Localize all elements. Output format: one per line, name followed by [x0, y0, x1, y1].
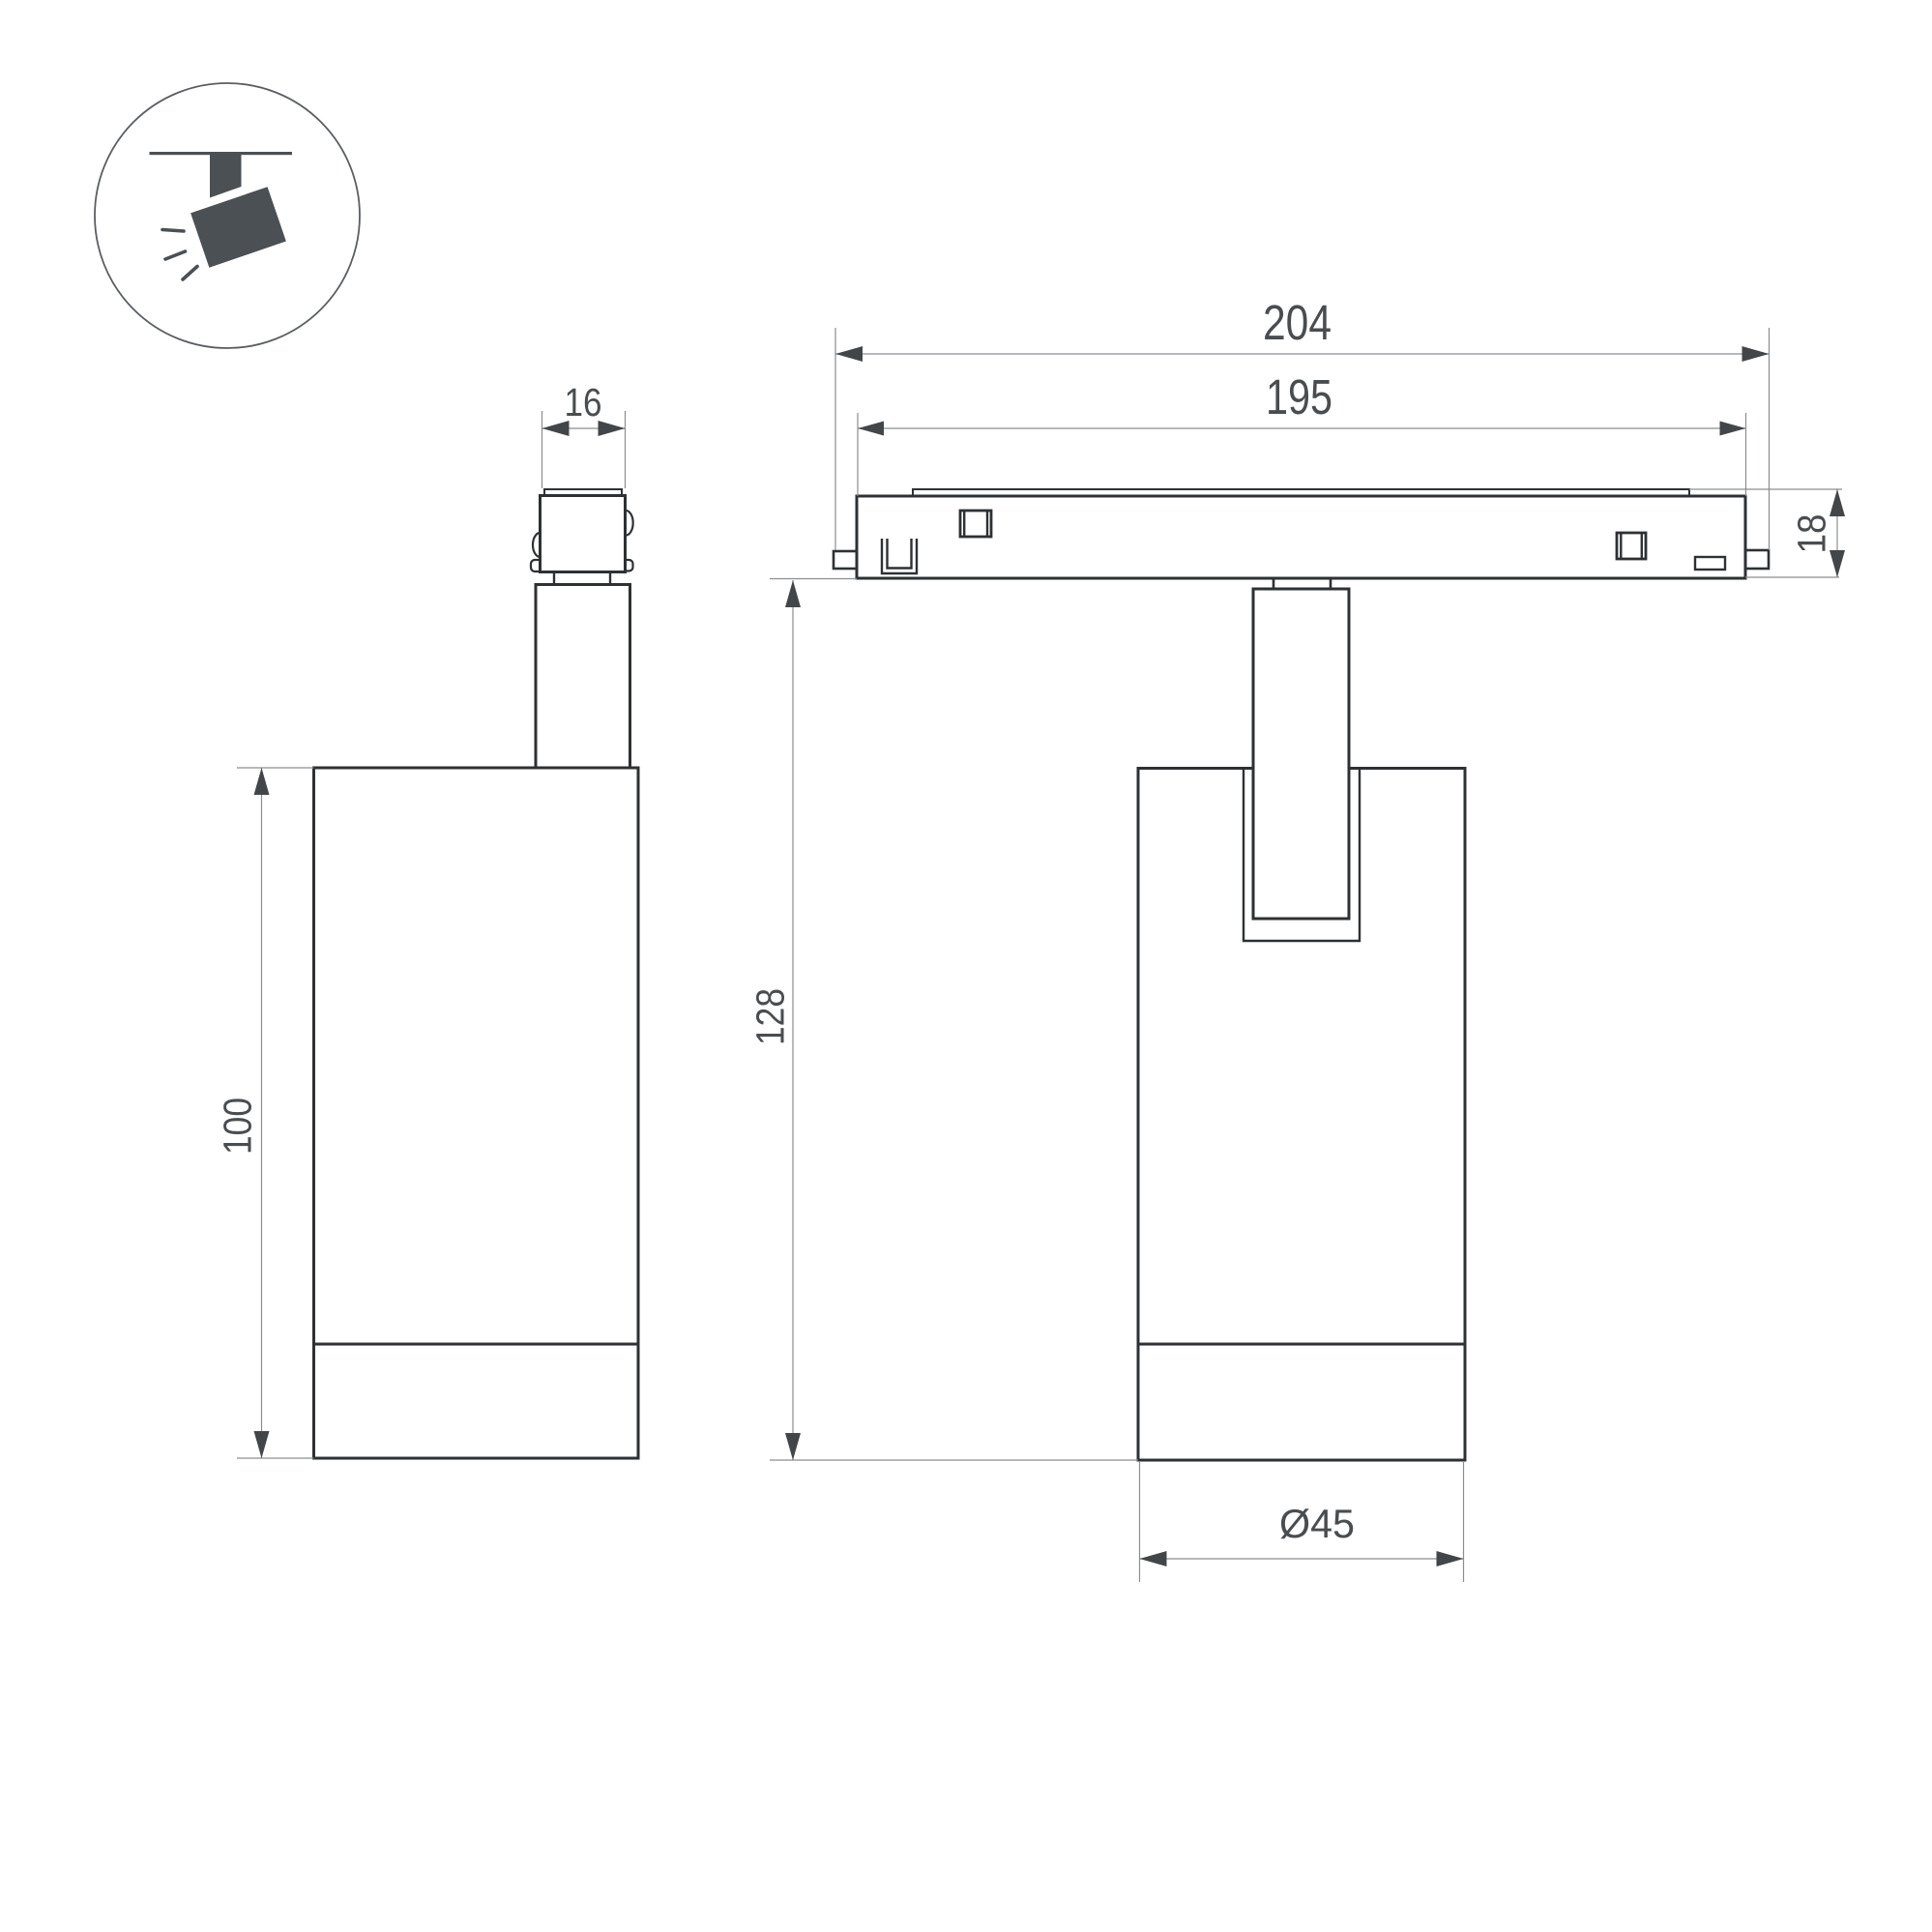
svg-text:128: 128 [748, 988, 793, 1045]
svg-text:Ø45: Ø45 [1279, 1501, 1355, 1546]
svg-text:18: 18 [1790, 514, 1834, 554]
svg-text:100: 100 [216, 1098, 260, 1155]
svg-text:204: 204 [1263, 295, 1332, 350]
svg-text:16: 16 [565, 380, 602, 424]
svg-text:195: 195 [1266, 369, 1332, 424]
